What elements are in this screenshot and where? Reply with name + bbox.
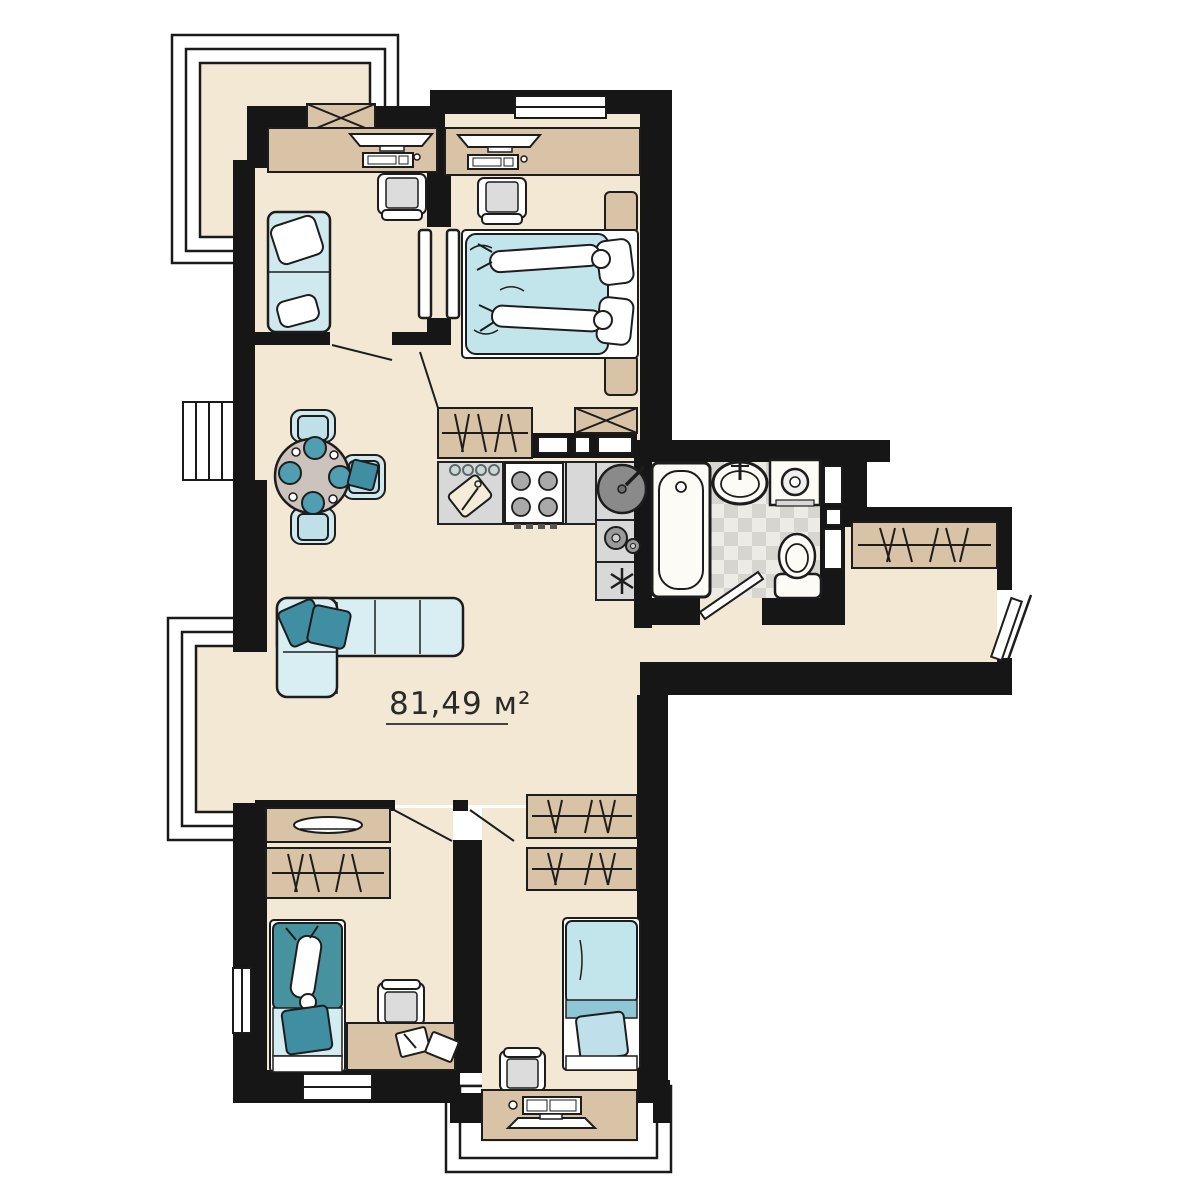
single-bed-icon	[563, 918, 640, 1070]
kitchen-sink-icon	[598, 465, 646, 513]
desk-icon	[482, 1090, 637, 1140]
sofa-pillow-icon	[306, 604, 351, 649]
pillow-icon	[575, 1011, 628, 1061]
loveseat-icon	[268, 212, 330, 332]
apartment-floorplan: 81,49 м²	[0, 0, 1200, 1200]
wardrobe-icon	[527, 848, 637, 890]
wardrobe-icon	[852, 522, 997, 568]
single-bed-icon	[270, 920, 345, 1072]
chair-icon	[478, 178, 526, 224]
vent-shaft-icon	[575, 408, 637, 433]
stove-icon	[505, 463, 563, 529]
bathroom-sink-icon	[713, 462, 767, 504]
desk-icon	[445, 128, 640, 175]
desk-icon	[347, 1023, 459, 1070]
desk-icon	[268, 128, 437, 172]
wardrobe-icon	[438, 408, 532, 458]
pillow-icon	[281, 1005, 333, 1055]
floorplan-canvas: 81,49 м²	[0, 0, 1200, 1200]
wardrobe-icon	[527, 795, 637, 838]
wardrobe-icon	[266, 848, 390, 898]
double-bed-icon	[462, 230, 638, 358]
bathtub-icon	[652, 463, 710, 597]
wall-shelf-icon	[266, 808, 390, 842]
chair-icon	[378, 980, 424, 1025]
apartment-area-text: 81,49 м²	[389, 686, 531, 722]
washing-machine-icon	[770, 460, 820, 506]
exterior-ladder	[183, 402, 237, 480]
chair-icon	[378, 174, 426, 220]
seat-pillow-icon	[347, 459, 379, 491]
area-label: 81,49 м²	[386, 686, 531, 724]
chair-icon	[500, 1048, 545, 1091]
